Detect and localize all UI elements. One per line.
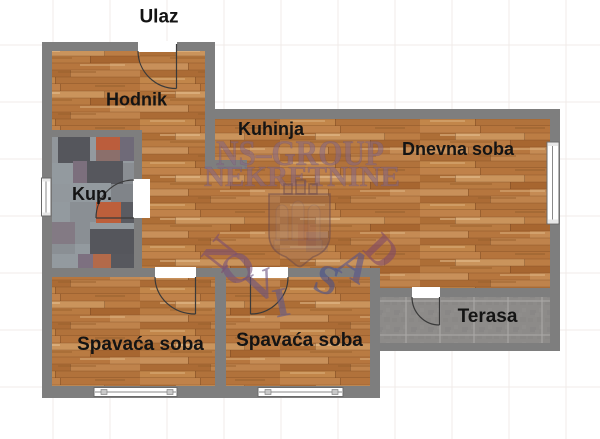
- svg-text:Terasa: Terasa: [458, 306, 518, 327]
- svg-text:Kup.: Kup.: [72, 184, 112, 204]
- svg-text:Kuhinja: Kuhinja: [238, 119, 305, 139]
- svg-text:Spavaća soba: Spavaća soba: [77, 334, 204, 355]
- svg-text:Hodnik: Hodnik: [106, 90, 168, 110]
- svg-text:Ulaz: Ulaz: [139, 7, 178, 28]
- svg-text:Spavaća soba: Spavaća soba: [236, 330, 363, 351]
- svg-text:Dnevna soba: Dnevna soba: [402, 139, 515, 159]
